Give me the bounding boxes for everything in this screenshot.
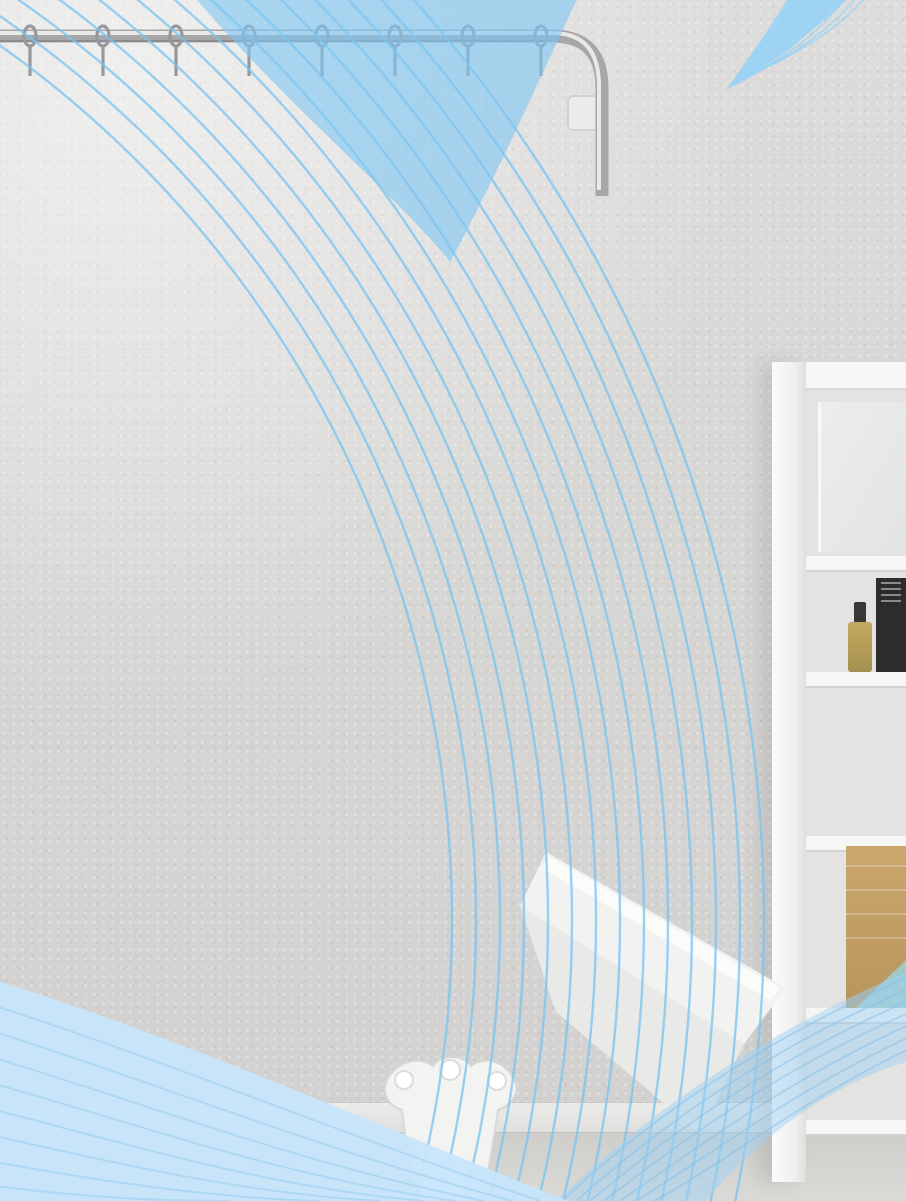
product-banner: ШТОРА ДЛЯ ВАННОЙ Качественный материал- … [0, 0, 906, 1201]
curtain-rod [0, 33, 602, 196]
rod-bracket [568, 96, 598, 130]
bathtub [520, 852, 786, 1134]
scene-graphics [0, 0, 906, 1201]
bathtub-foot [385, 1057, 517, 1201]
